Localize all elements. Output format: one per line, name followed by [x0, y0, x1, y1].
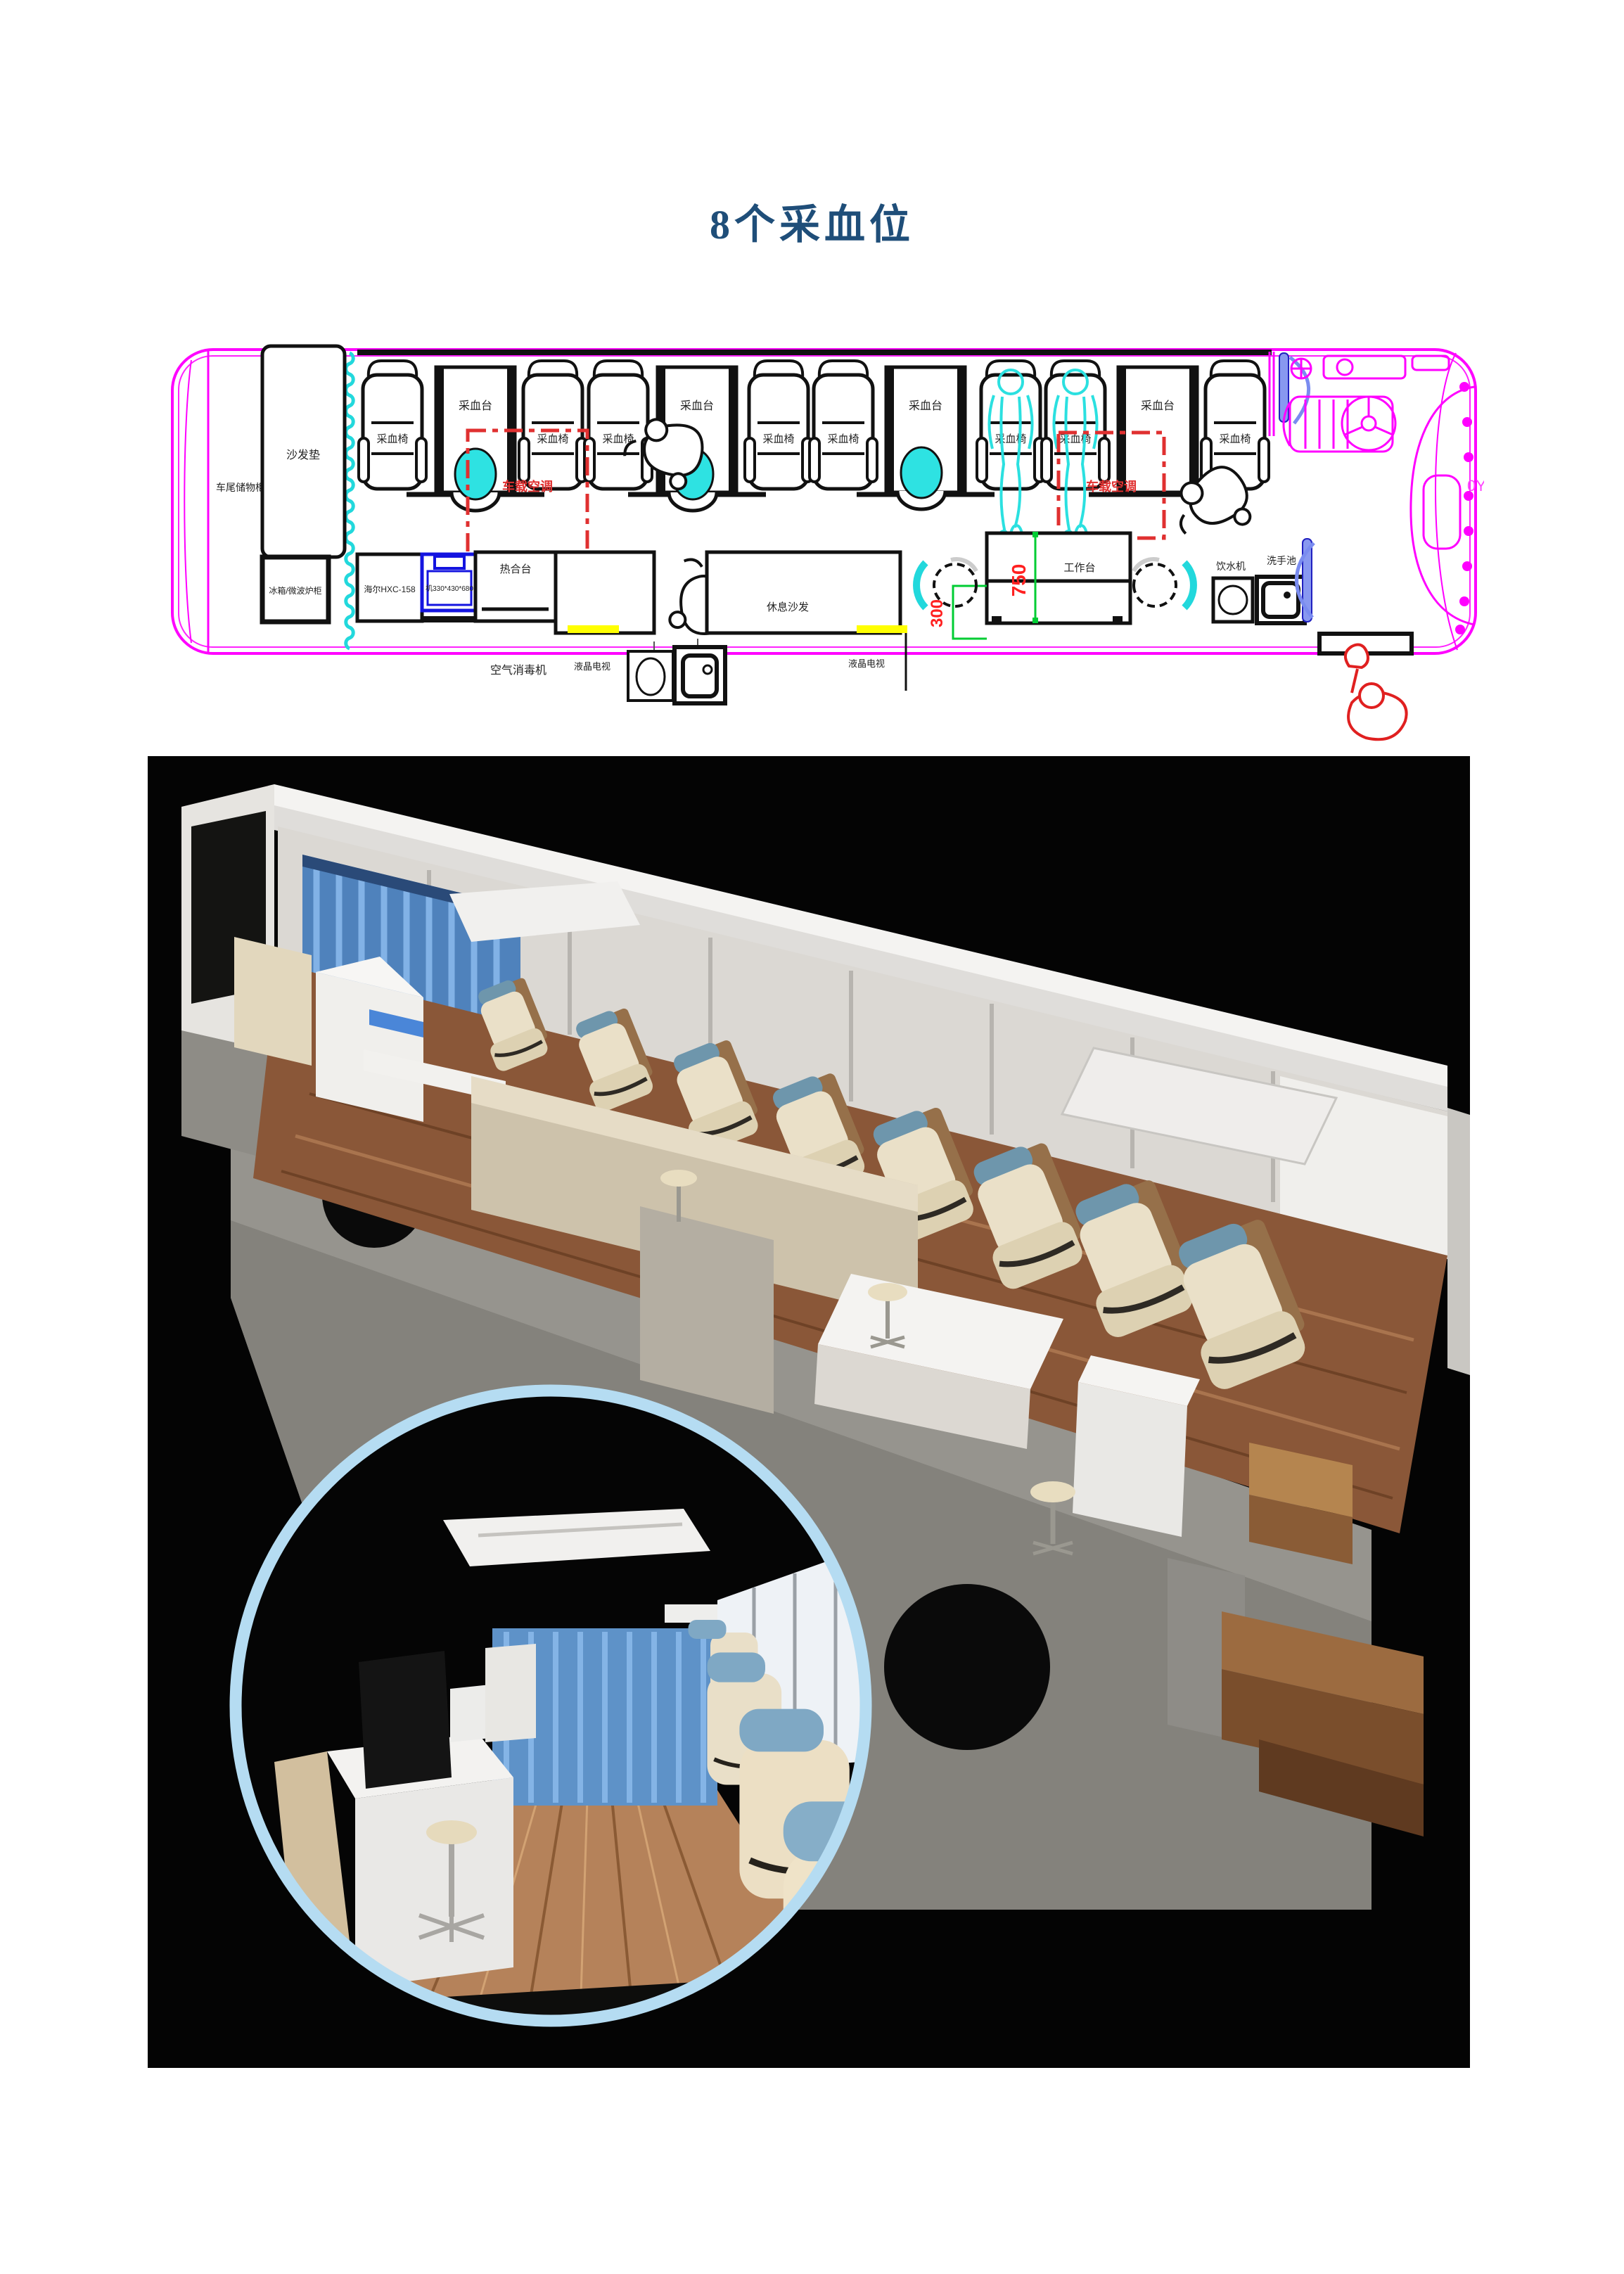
rear-storage-area: 车尾储物柜: [216, 482, 265, 493]
render-3d-figure: [148, 756, 1470, 2068]
svg-text:热合台: 热合台: [499, 563, 531, 575]
blood-chair: 采血椅: [537, 433, 568, 445]
stool-icon: [452, 449, 499, 511]
lcd-tv-label: 液晶电视: [848, 658, 885, 669]
blood-chair: 采血椅: [827, 433, 859, 445]
svg-text:机330*430*680: 机330*430*680: [426, 584, 473, 593]
fridge-microwave-cabinet: 冰箱/微波炉柜: [262, 557, 328, 622]
svg-text:饮水机: 饮水机: [1216, 561, 1246, 572]
heat-sealer-room: 热合台: [475, 552, 556, 621]
svg-text:洗手池: 洗手池: [1267, 555, 1296, 566]
blood-table: 采血台: [680, 400, 714, 412]
blood-chair: 采血椅: [995, 433, 1026, 445]
svg-text:车载空调: 车载空调: [502, 479, 553, 494]
air-sterilizer-label: 空气消毒机: [490, 664, 546, 677]
lcd-tv-strip: [857, 625, 907, 633]
blue-equipment-unit: 机330*430*680: [421, 554, 480, 622]
svg-text:冰箱/微波炉柜: 冰箱/微波炉柜: [269, 585, 321, 596]
svg-text:工作台: 工作台: [1063, 562, 1095, 574]
page-title: 8个采血位: [0, 191, 1624, 250]
document-page: 8个采血位: [0, 0, 1624, 2274]
svg-text:车载空调: 车载空调: [1086, 479, 1137, 494]
blood-chair: 采血椅: [1059, 433, 1091, 445]
rest-sofa-room: 休息沙发: [707, 552, 907, 691]
svg-text:750: 750: [1008, 564, 1030, 597]
front-wheel: [884, 1584, 1050, 1750]
edge-mark-label: 0Y: [1467, 477, 1484, 494]
white-pedestal: [1073, 1355, 1200, 1537]
lcd-tv-strip: [568, 625, 619, 633]
haier-fridge-room: 海尔HXC-158: [357, 554, 422, 621]
lcd-tv-label: 液晶电视: [574, 661, 610, 672]
blood-table: 采血台: [1141, 400, 1175, 412]
floor-plan-figure: 医用帘 车尾储物柜 沙发垫 冰箱/微波炉柜 采血椅 采血椅 采血椅 采血椅 采血…: [162, 338, 1484, 742]
svg-text:休息沙发: 休息沙发: [767, 601, 809, 613]
tv-cabinet-room: [556, 552, 654, 633]
svg-text:海尔HXC-158: 海尔HXC-158: [364, 584, 416, 594]
svg-text:沙发垫: 沙发垫: [286, 449, 320, 461]
rear-storage-label: 车尾储物柜: [216, 482, 265, 493]
sofa-cushion-room: 沙发垫: [262, 346, 345, 557]
visitor-figure-red: [1345, 645, 1407, 740]
blood-chair: 采血椅: [762, 433, 794, 445]
inset-monitor: [359, 1651, 452, 1789]
front-door: [1279, 353, 1289, 422]
blood-table: 采血台: [909, 400, 942, 412]
blood-chair: 采血椅: [1219, 433, 1251, 445]
stool-icon: [897, 447, 945, 509]
blood-table: 采血台: [459, 400, 492, 412]
blood-chair: 采血椅: [376, 433, 408, 445]
